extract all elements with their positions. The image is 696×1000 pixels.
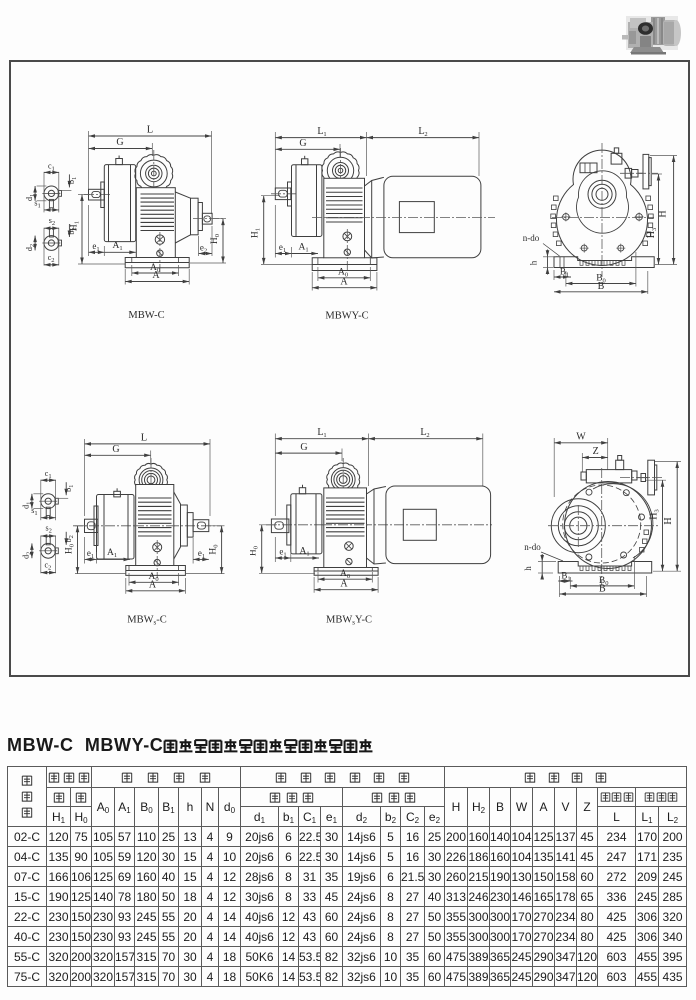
- svg-text:e1: e1: [87, 548, 94, 560]
- svg-text:MBW-C: MBW-C: [128, 310, 164, 321]
- svg-text:n-do: n-do: [523, 233, 540, 243]
- svg-text:c2: c2: [48, 253, 55, 264]
- svg-text:G: G: [112, 444, 119, 455]
- svg-text:A1: A1: [299, 547, 309, 558]
- svg-text:MBWs-C: MBWs-C: [127, 615, 166, 627]
- svg-text:L1: L1: [317, 428, 326, 439]
- svg-text:d2: d2: [22, 552, 33, 559]
- svg-text:H1: H1: [251, 228, 262, 238]
- svg-text:G: G: [300, 442, 307, 453]
- svg-text:s2: s2: [46, 524, 52, 535]
- svg-text:d2: d2: [25, 244, 36, 251]
- svg-text:s2: s2: [49, 216, 55, 227]
- svg-text:L1: L1: [317, 126, 326, 138]
- svg-text:c1: c1: [45, 469, 52, 480]
- svg-text:A1: A1: [112, 241, 122, 252]
- svg-text:h: h: [523, 566, 533, 571]
- svg-text:A: A: [340, 578, 348, 589]
- svg-text:B: B: [599, 584, 606, 595]
- svg-text:b1: b1: [64, 485, 75, 492]
- svg-text:A1: A1: [298, 243, 308, 254]
- svg-text:n-do: n-do: [524, 542, 541, 552]
- svg-text:H: H: [663, 517, 674, 524]
- svg-text:MBWY-C: MBWY-C: [325, 311, 368, 322]
- svg-text:MBWsY-C: MBWsY-C: [326, 615, 372, 627]
- svg-text:B: B: [598, 281, 605, 292]
- svg-text:A: A: [340, 277, 348, 288]
- svg-text:e1: e1: [279, 242, 286, 254]
- svg-text:G: G: [299, 138, 306, 149]
- svg-text:H3: H3: [646, 228, 658, 238]
- svg-text:H: H: [658, 210, 669, 217]
- svg-text:L2: L2: [418, 126, 427, 138]
- svg-text:Z: Z: [593, 446, 599, 457]
- svg-text:L2: L2: [420, 428, 429, 439]
- svg-text:G: G: [116, 137, 123, 148]
- svg-text:H0: H0: [64, 544, 75, 554]
- svg-text:c2: c2: [44, 561, 51, 572]
- svg-text:A: A: [152, 270, 160, 281]
- svg-text:e2: e2: [200, 242, 207, 254]
- svg-text:H0: H0: [250, 546, 260, 556]
- svg-text:b1: b1: [67, 177, 78, 184]
- svg-text:A: A: [149, 580, 157, 591]
- svg-text:L: L: [147, 125, 153, 136]
- svg-text:A1: A1: [107, 548, 117, 559]
- svg-text:H0: H0: [209, 544, 220, 554]
- svg-text:b2: b2: [64, 535, 75, 542]
- svg-text:W: W: [576, 432, 586, 443]
- svg-text:h: h: [529, 260, 539, 265]
- svg-text:H3: H3: [648, 509, 660, 519]
- svg-text:L: L: [141, 433, 147, 444]
- svg-text:c1: c1: [48, 161, 55, 172]
